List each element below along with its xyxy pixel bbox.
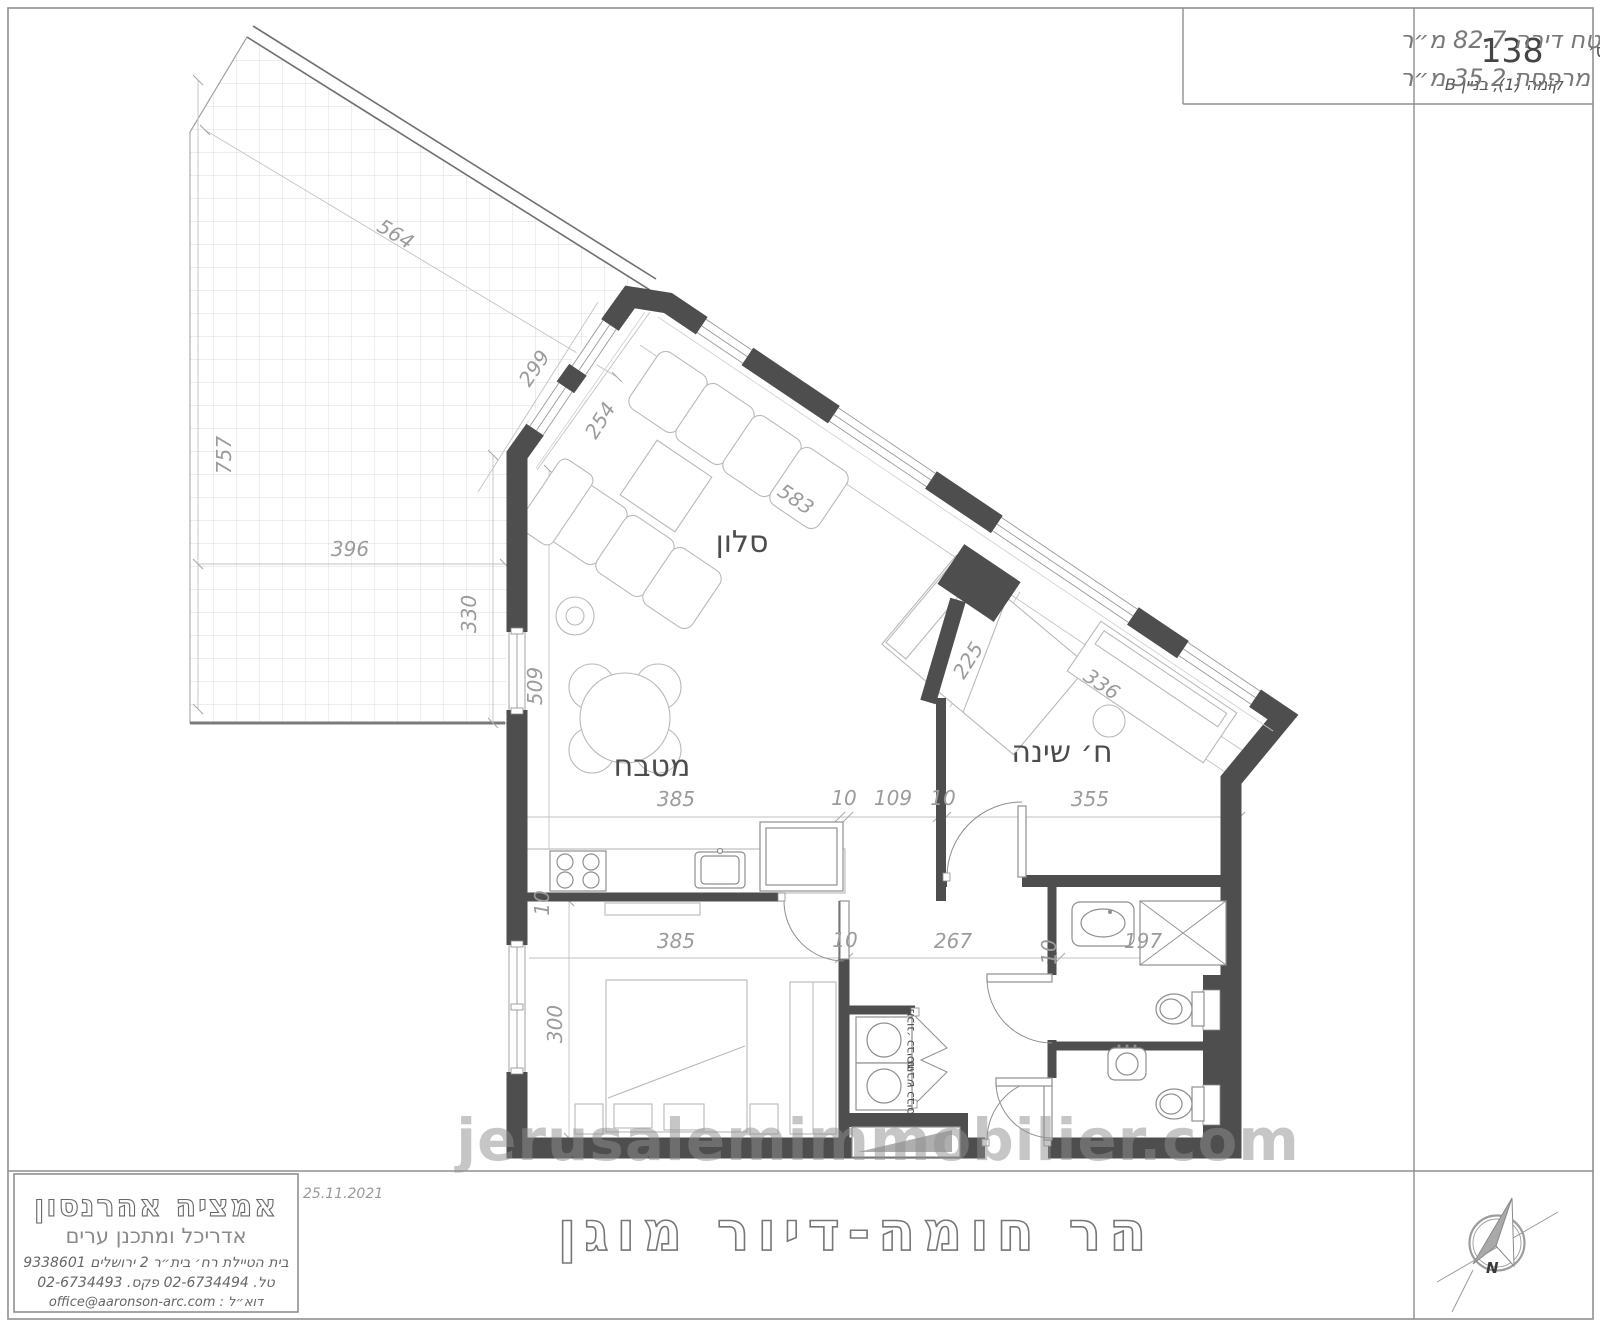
dimension-label: 254: [580, 398, 621, 443]
room-label: ח׳ שינה: [1011, 735, 1112, 770]
wc-door-leaf: [996, 1078, 1052, 1086]
dimension-label: 267: [934, 929, 972, 953]
architect-email: דוא״ל : office@aaronson-arc.com: [49, 1295, 265, 1310]
dimension-label: 10: [530, 890, 554, 915]
architect-role: אדריכל ומתכנן ערים: [65, 1224, 246, 1248]
compass-n-label: N: [1486, 1259, 1499, 1277]
dimension-label: 10: [930, 786, 955, 810]
dimension-label: 330: [457, 595, 481, 633]
bedroom1-door-leaf: [1018, 806, 1026, 877]
window: [695, 316, 754, 367]
dimension-label: 396: [331, 537, 369, 561]
room-label: סלון: [716, 525, 769, 560]
compass: N: [1437, 1198, 1558, 1312]
dimension-label: 509: [523, 667, 547, 705]
dimension-label: 109: [874, 786, 912, 810]
dimension-label: 385: [657, 787, 695, 811]
project-title: הר חומה-דיור מוגן: [558, 1200, 1154, 1263]
dimension-label: 355: [1071, 787, 1109, 811]
architect-name: אמציה אהרנסון: [34, 1189, 278, 1224]
floorplan-sheet: סלוןמטבחח׳ שינהמכונ׳ כביסהמיבש כביסה5642…: [0, 0, 1600, 1328]
date: 25.11.2021: [303, 1186, 383, 1202]
dimension-label: 197: [1124, 929, 1162, 953]
architect-address: בית הטיילת רח׳ בית״ר 2 ירושלים 9338601: [23, 1255, 288, 1271]
bifold-doors: [915, 1016, 947, 1104]
room-label: מטבח: [614, 749, 691, 784]
dimension-label: 300: [543, 1005, 567, 1043]
furniture: [516, 348, 1237, 1134]
area-apartment: שטח דירה 82.7 מ״ר: [1400, 26, 1600, 54]
dimension-label: 385: [657, 929, 695, 953]
chair: [1093, 705, 1125, 737]
architect-phone: טל. 02-6734494 פקס. 02-6734493: [37, 1275, 275, 1291]
kitchen-counter: [520, 822, 845, 893]
shelf: [605, 903, 700, 915]
bathroom-door-leaf: [987, 974, 1052, 982]
hand-sink: [1108, 1045, 1146, 1081]
window: [506, 941, 529, 1074]
dimension-label: 10: [831, 786, 856, 810]
dimension-label: 10: [832, 928, 857, 952]
watermark: jerusalemimmobilier.com: [454, 1106, 1300, 1174]
dimension-label: 757: [212, 436, 236, 474]
dimension-label: 10: [1037, 939, 1061, 964]
area-balcony: שטח מרפסת 35.2 מ״ר: [1400, 64, 1600, 92]
toilet: [1156, 992, 1204, 1026]
